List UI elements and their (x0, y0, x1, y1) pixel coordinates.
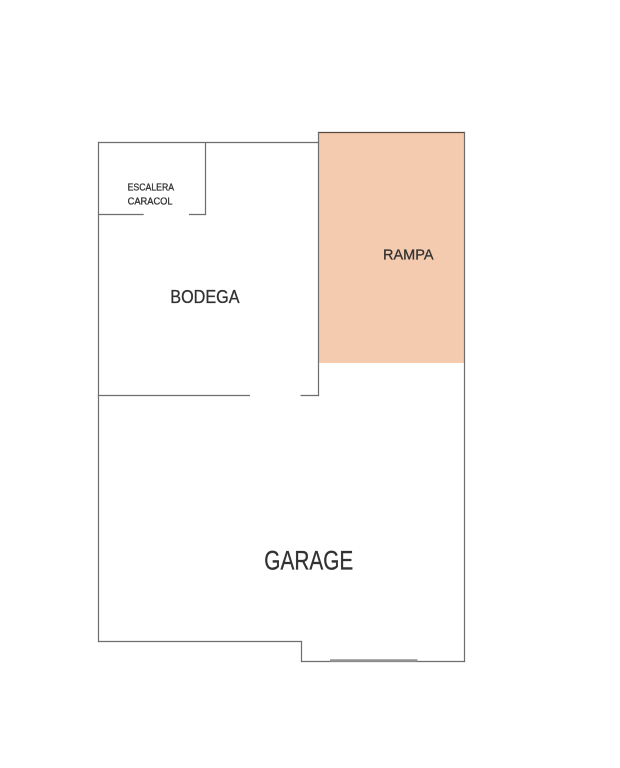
svg-text:BODEGA: BODEGA (170, 287, 240, 307)
svg-text:ESCALERA: ESCALERA (128, 182, 175, 193)
svg-text:RAMPA: RAMPA (383, 246, 434, 263)
svg-text:CARACOL: CARACOL (128, 196, 173, 207)
svg-text:GARAGE: GARAGE (264, 545, 353, 575)
